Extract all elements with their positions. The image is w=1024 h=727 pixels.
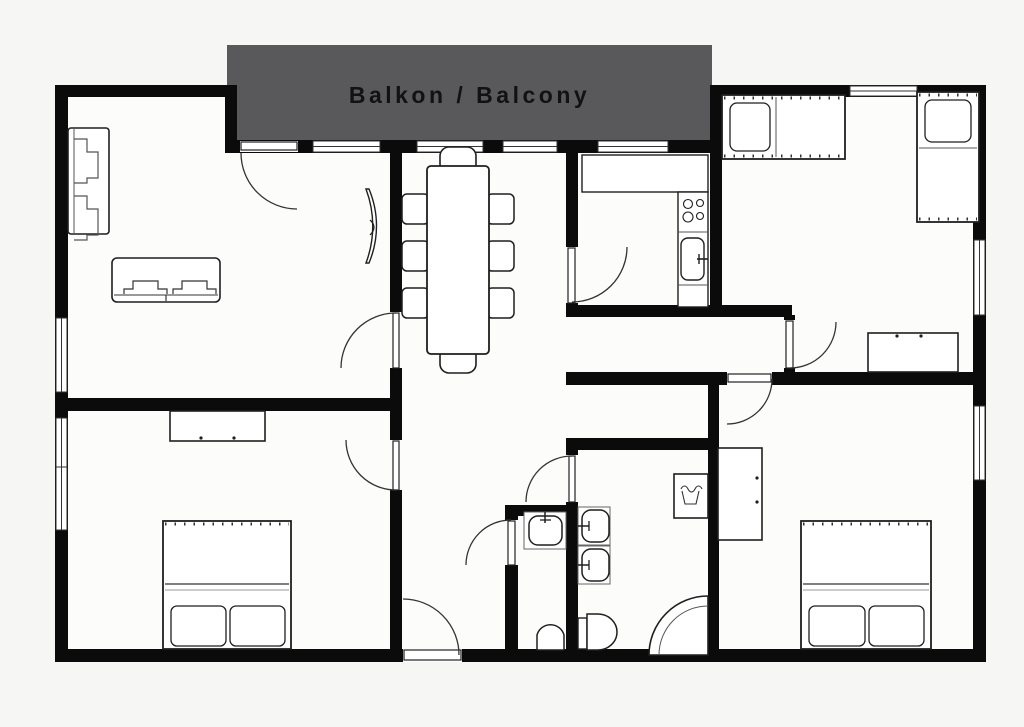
single-bed-2 [917, 92, 979, 222]
single-bed-1 [722, 95, 845, 159]
balcony-deck [227, 45, 712, 145]
double-bed-bl [163, 521, 291, 649]
window-living-balcony [313, 141, 380, 152]
window-bedroom-tr-top [850, 86, 917, 96]
window-bedroom-tr-right [974, 240, 985, 315]
washing-machine [674, 474, 708, 518]
dresser-bl [170, 411, 265, 441]
window-bedroom-bl-left [56, 418, 67, 530]
wardrobe-br [718, 448, 762, 540]
window-bedroom-br-right [974, 406, 985, 480]
sofa [112, 258, 220, 302]
window-kitchen-balcony [598, 141, 668, 152]
bathroom-sink-1 [578, 507, 610, 545]
window-dining-balcony-2 [503, 141, 557, 152]
shelf-unit [68, 128, 109, 240]
window-living-left [56, 318, 67, 392]
wc-toilet [537, 625, 564, 650]
sideboard-tr [868, 333, 958, 372]
wc-sink [524, 512, 566, 549]
floor-plan-canvas [0, 0, 1024, 727]
floor-plan: Balkon / Balcony [0, 0, 1024, 727]
double-bed-br [801, 521, 931, 649]
bathroom-toilet [578, 614, 617, 650]
bathroom-sink-2 [578, 546, 610, 584]
